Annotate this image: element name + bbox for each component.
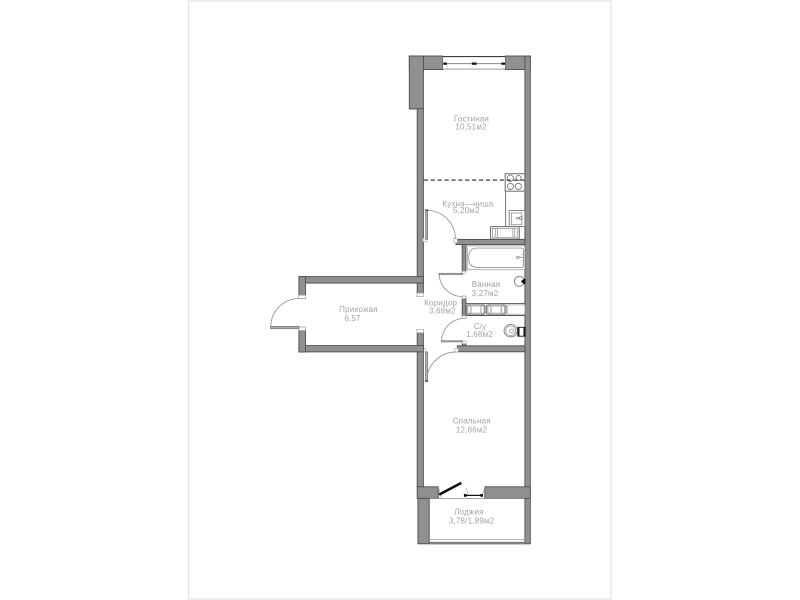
svg-text:1,68м2: 1,68м2 [466,330,493,339]
svg-text:Прихожая: Прихожая [339,305,378,314]
svg-text:6,57: 6,57 [344,314,361,323]
svg-text:Лоджия: Лоджия [454,508,484,517]
svg-text:12,86м2: 12,86м2 [456,426,488,435]
svg-text:3,27м2: 3,27м2 [472,289,499,298]
svg-text:3,78/1,89м2: 3,78/1,89м2 [449,517,495,526]
svg-text:5,20м2: 5,20м2 [453,206,480,215]
svg-text:3,68м2: 3,68м2 [429,307,456,316]
svg-text:Спальная: Спальная [453,416,491,425]
svg-text:Ванная: Ванная [472,280,501,289]
svg-text:10,51м2: 10,51м2 [455,122,487,131]
